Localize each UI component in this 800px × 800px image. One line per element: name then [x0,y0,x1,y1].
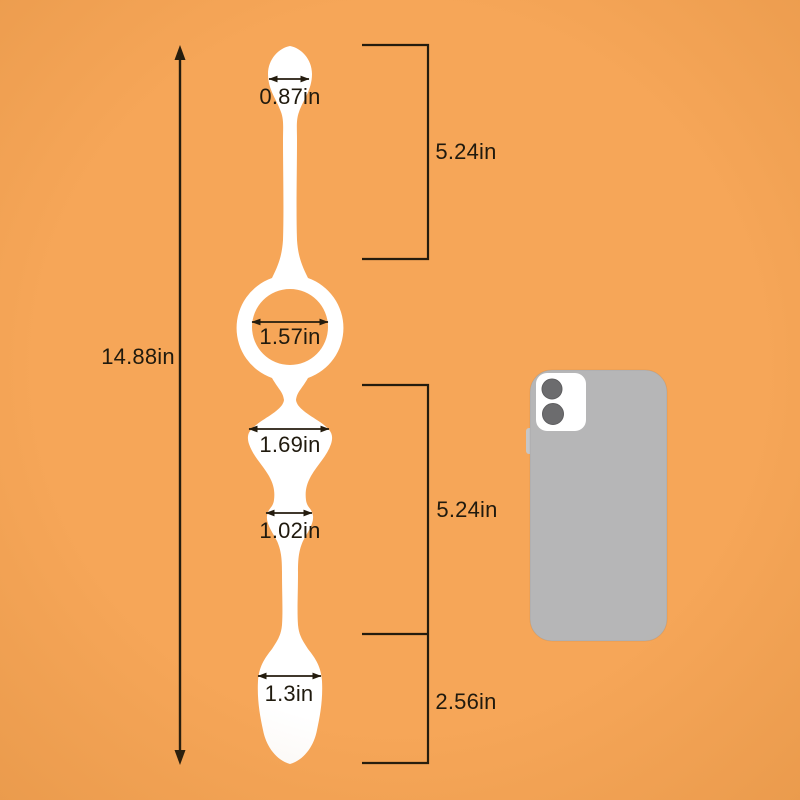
large-bead-width-label: 1.69in [259,434,320,456]
product-dimension-diagram: 14.88in 0.87in 5.24in 1.57in 1.69in 1.02… [0,0,800,800]
ring-inner-diameter-label: 1.57in [259,326,320,348]
upper-section-length-label: 5.24in [435,141,496,163]
mid-section-length-label: 5.24in [436,499,497,521]
phone-camera-lens-top [542,379,562,399]
bulge-width-label: 1.02in [259,520,320,542]
diagram-canvas [0,0,800,800]
phone-camera-lens-bottom [543,404,564,425]
phone-camera-plate [536,373,586,431]
total-length-label: 14.88in [101,346,175,368]
top-bead-width-label: 0.87in [259,86,320,108]
background [0,0,800,800]
tail-section-length-label: 2.56in [435,691,496,713]
phone-illustration [526,370,667,641]
bottom-bead-width-label: 1.3in [265,683,314,705]
